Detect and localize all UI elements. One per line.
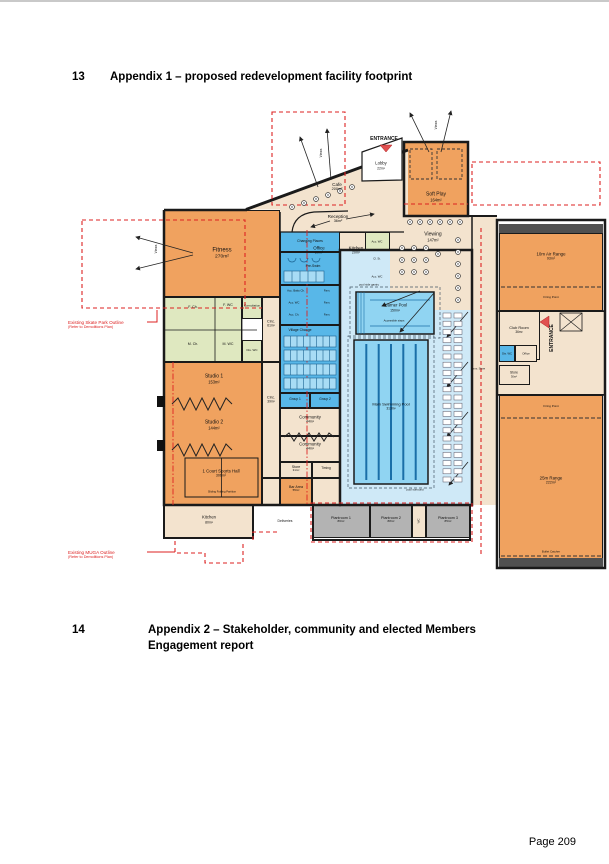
appendix2-title-line1: Appendix 2 – Stakeholder, community and … xyxy=(148,624,476,636)
partition-zigzags xyxy=(172,398,334,456)
appendix1-title: Appendix 1 – proposed redevelopment faci… xyxy=(110,69,412,85)
floor-plan-graphics xyxy=(60,105,609,600)
appendix2-heading: 14 Appendix 2 – Stakeholder, community a… xyxy=(72,622,528,654)
section-number-14: 14 xyxy=(72,622,148,654)
section-number-13: 13 xyxy=(72,69,110,85)
black-dashed-lines xyxy=(410,149,603,556)
pools xyxy=(348,287,440,488)
lobby-shape xyxy=(362,138,402,181)
appendix2-title-line2: Engagement report xyxy=(148,640,253,652)
window-top-edge xyxy=(0,0,609,2)
floor-plan: Fitness270m²F. Ch.F. WCM. Ch.M. WCConsul… xyxy=(60,105,609,600)
page-number: Page 209 xyxy=(529,836,576,848)
appendix2-title: Appendix 2 – Stakeholder, community and … xyxy=(148,622,528,654)
appendix1-heading: 13 Appendix 1 – proposed redevelopment f… xyxy=(72,69,412,85)
